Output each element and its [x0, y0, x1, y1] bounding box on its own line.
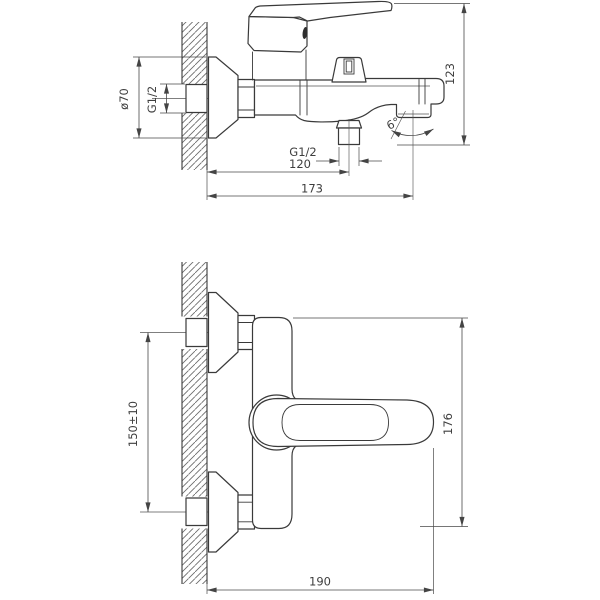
dim-overall-depth-label: 190: [309, 575, 331, 589]
handle-cap: [248, 17, 307, 53]
escutcheon-flange: [209, 472, 239, 552]
dim-inlet-thread-label: G1/2: [145, 86, 159, 113]
lower-pipe-stub: [186, 498, 207, 526]
dim-flange-diameter-label: ø70: [117, 88, 131, 110]
lever-handle-side: [248, 1, 392, 52]
hex-nut: [238, 80, 255, 118]
mixer-body-front: [249, 318, 434, 529]
dim-spout-reach-label: 173: [301, 182, 323, 196]
wall-hatch: [182, 262, 207, 317]
shower-outlet-nipple: [337, 119, 362, 176]
wall-hatch: [182, 529, 207, 585]
escutcheon-flange: [209, 57, 239, 138]
wall-hatch: [182, 113, 207, 170]
bath-mixer-dimension-drawing: ø70 G1/2 123 6° G1/2 120 173: [0, 0, 600, 600]
lower-escutcheon-front: [209, 472, 255, 552]
wall-hatch: [182, 22, 207, 84]
inlet-pipe-side: [152, 85, 216, 113]
handle-lever-front: [253, 399, 434, 447]
escutcheon-side: [209, 57, 255, 138]
wall-hatch: [182, 349, 207, 497]
upper-escutcheon-front: [209, 293, 255, 373]
upper-pipe-stub: [186, 319, 207, 347]
dim-shower-outlet-offset-label: 120: [289, 157, 311, 171]
front-view: 150±10 176 190: [126, 262, 468, 594]
dim-body-height-label: 176: [441, 413, 455, 435]
technical-drawing-page: ø70 G1/2 123 6° G1/2 120 173: [0, 0, 600, 600]
inlet-pipe-stub: [186, 85, 207, 113]
escutcheon-flange: [209, 293, 239, 373]
wall-section-front: [182, 262, 207, 584]
diverter-knob: [332, 58, 366, 83]
body-barrel: [255, 79, 445, 122]
dimensions-front-view: 150±10 176 190: [126, 318, 468, 594]
dim-overall-height-label: 123: [443, 63, 457, 85]
side-view: ø70 G1/2 123 6° G1/2 120 173: [117, 1, 470, 200]
dim-connection-spacing-label: 150±10: [126, 401, 140, 447]
